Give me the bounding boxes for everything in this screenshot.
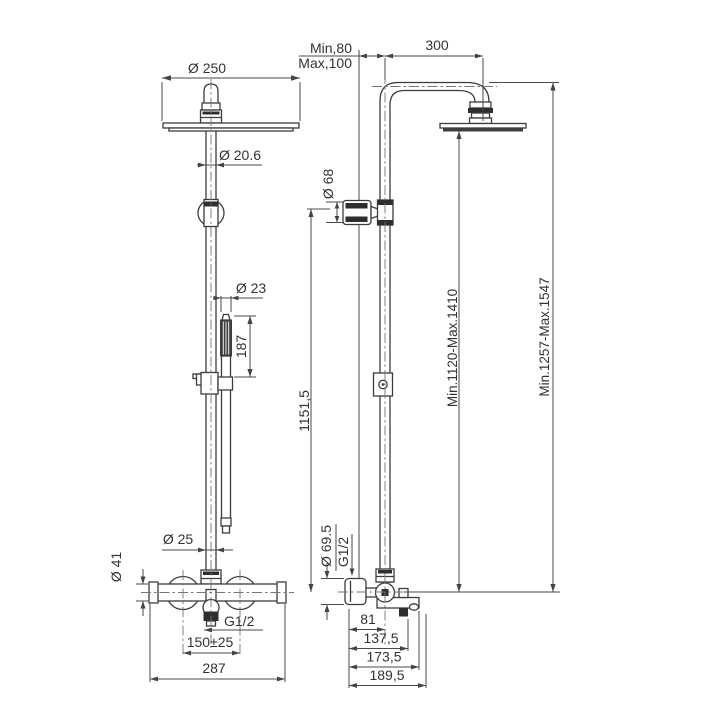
mixer-front [149, 577, 286, 627]
dim-wall-offset-min-label: Min,80 [310, 40, 352, 56]
dim-handshower-length-label: 187 [233, 335, 249, 359]
dim-wall-offset: Min,80 Max,100 [298, 40, 385, 71]
dim-pipe-diameter-label: Ø 20.6 [219, 147, 261, 163]
technical-drawing-page: Ø 250 Ø 20.6 Ø 23 187 Ø 25 [0, 0, 720, 720]
dim-column-height-label: 1151,5 [296, 390, 312, 432]
dim-depth-mid: 137,5 [349, 619, 408, 651]
dim-handshower-diameter: Ø 23 [213, 280, 266, 312]
dim-handshower-head-diameter: Ø 68 [320, 169, 344, 223]
handshower-holder-side [343, 200, 393, 225]
dim-head-height-range: Min.1120-Max.1410 [445, 131, 462, 592]
dim-riser-diameter: Ø 25 [162, 531, 233, 552]
dim-outlet-thread-label: G1/2 [224, 613, 255, 629]
slider-side [374, 373, 393, 396]
dim-total-height-range-label: Min.1257-Max.1547 [537, 277, 552, 396]
dim-overall-width-label: 287 [202, 660, 226, 676]
dim-total-height-range: Min.1257-Max.1547 [489, 83, 559, 593]
dim-pipe-diameter: Ø 20.6 [197, 147, 262, 167]
slider-bracket-front [193, 373, 233, 395]
dim-inlet-spacing-label: 150±25 [187, 634, 234, 650]
head-nut-side [468, 102, 493, 124]
shower-column-technical-drawing: Ø 250 Ø 20.6 Ø 23 187 Ø 25 [0, 0, 720, 720]
dim-depth-body-label: 173,5 [366, 649, 401, 665]
dim-head-diameter: Ø 250 [162, 60, 300, 121]
overhead-shower-front [163, 123, 299, 131]
dim-handshower-head-diameter-label: Ø 68 [320, 169, 336, 200]
dim-handshower-length: 187 [233, 316, 256, 377]
dim-head-diameter-label: Ø 250 [188, 60, 226, 76]
dim-depth-overall-label: 189,5 [369, 667, 404, 683]
dim-handshower-diameter-label: Ø 23 [236, 280, 267, 296]
mixer-side [345, 569, 419, 617]
dim-inlet-spacing: 150±25 [183, 634, 240, 655]
dim-connection-thread: G1/2 [335, 534, 354, 576]
dim-head-height-range-label: Min.1120-Max.1410 [445, 289, 460, 407]
dim-connection-thread-label: G1/2 [335, 537, 351, 568]
side-view: Min,80 Max,100 300 Ø 68 1151,5 [296, 37, 560, 688]
dim-wall-offset-max-label: Max,100 [298, 55, 352, 71]
riser-and-arm-side [380, 83, 489, 584]
dim-body-diameter: Ø 41 [108, 552, 148, 616]
dim-riser-diameter-label: Ø 25 [163, 531, 194, 547]
dim-depth-riser-label: 81 [360, 611, 376, 627]
dim-handle-diameter-label: Ø 69.5 [318, 525, 334, 567]
overhead-shower-side [440, 124, 526, 132]
handshower-front [221, 315, 232, 534]
dim-arm-reach-label: 300 [425, 37, 449, 53]
dim-body-diameter-label: Ø 41 [108, 552, 124, 583]
front-view: Ø 250 Ø 20.6 Ø 23 187 Ø 25 [108, 60, 300, 682]
dim-depth-mid-label: 137,5 [363, 630, 398, 646]
